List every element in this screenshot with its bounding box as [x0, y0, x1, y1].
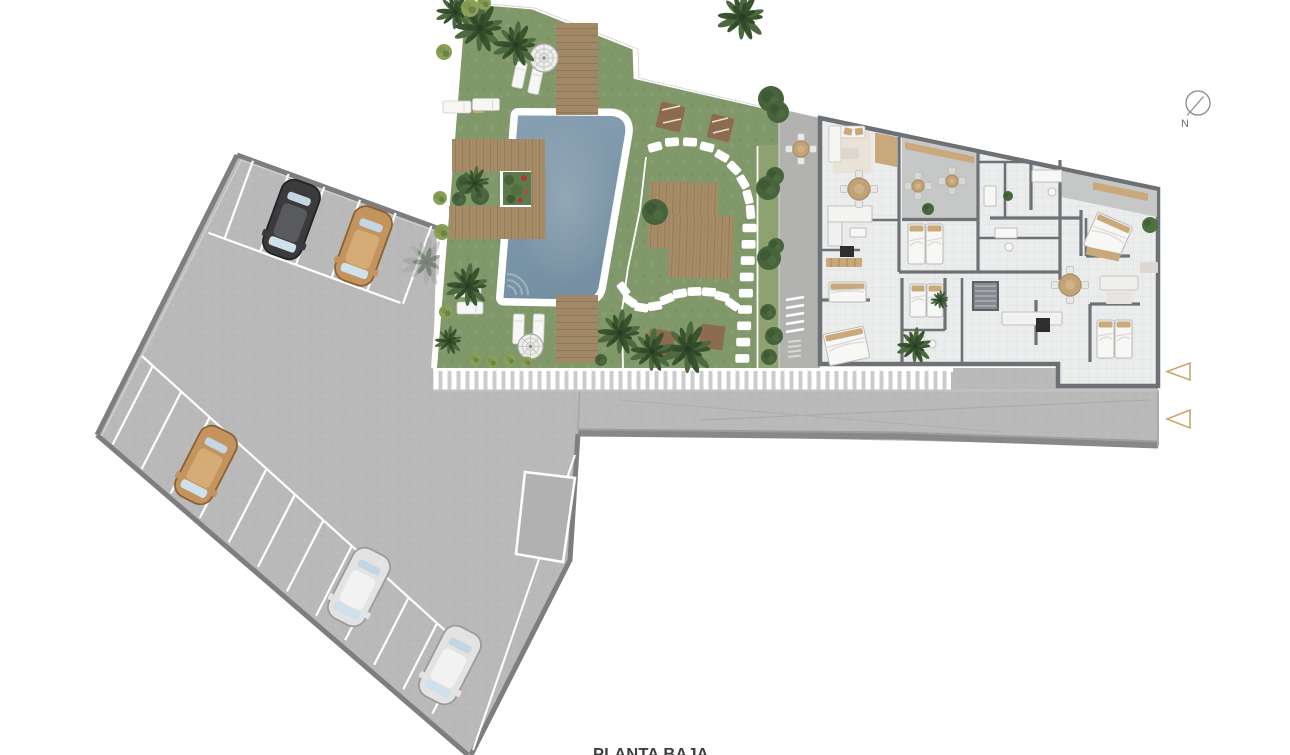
svg-text:PLANTA BAJA: PLANTA BAJA: [593, 746, 709, 755]
svg-text:N: N: [1181, 118, 1189, 130]
